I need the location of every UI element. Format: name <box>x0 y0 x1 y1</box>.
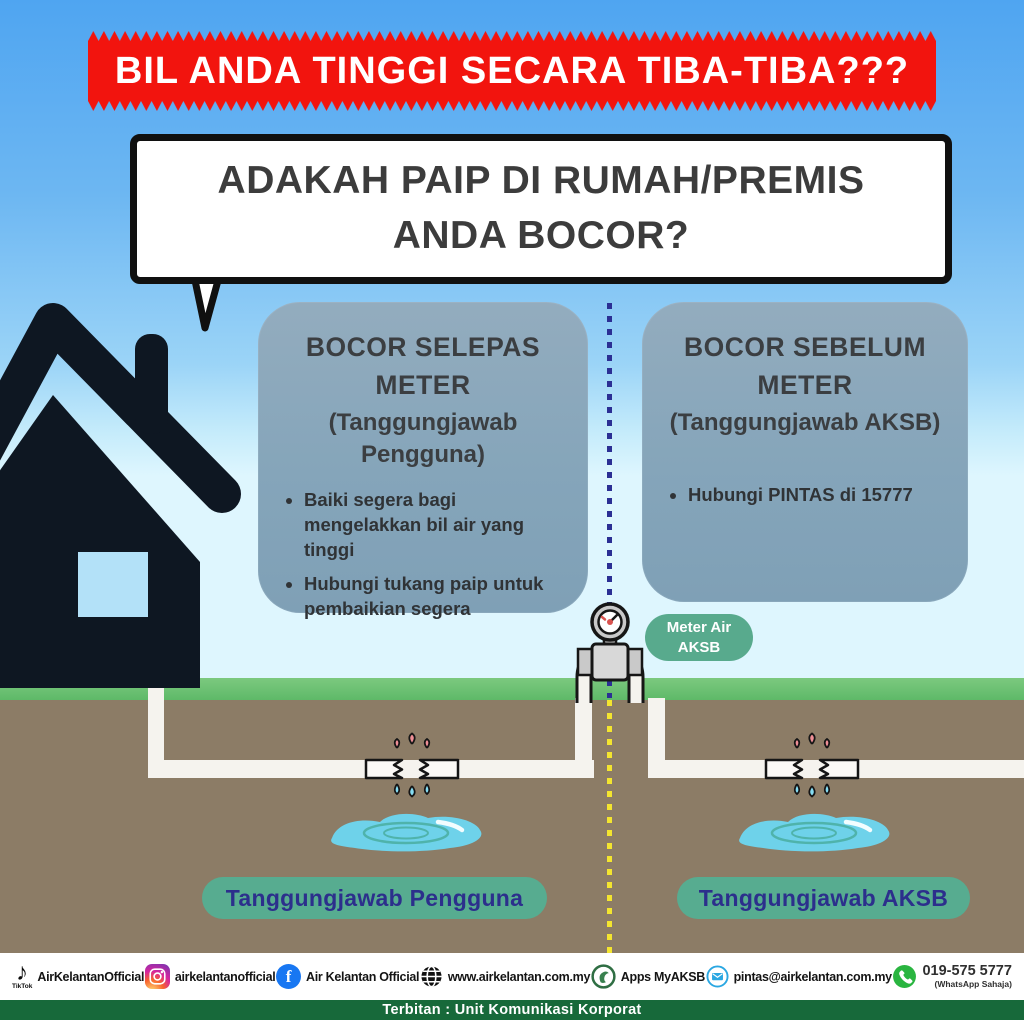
myaksb-app-icon <box>591 964 616 989</box>
card-bullet-list: Baiki segera bagi mengelakkan bil air ya… <box>280 488 566 622</box>
tiktok-handle: AirKelantanOfficial <box>37 970 144 984</box>
footer-contact-row: ♪ TikTok AirKelantanOfficial airkelantan… <box>0 953 1024 1000</box>
facebook-name: Air Kelantan Official <box>306 970 419 984</box>
card-bullet-list: Hubungi PINTAS di 15777 <box>664 483 946 508</box>
email-icon <box>706 965 729 988</box>
banner-zigzag-bottom <box>88 101 936 111</box>
bullet-item: Baiki segera bagi mengelakkan bil air ya… <box>304 488 566 563</box>
instagram-contact: airkelantanofficial <box>145 964 276 989</box>
website-contact: www.airkelantan.com.my <box>420 965 590 988</box>
bullet-item: Hubungi PINTAS di 15777 <box>688 483 946 508</box>
banner-text: BIL ANDA TINGGI SECARA TIBA-TIBA??? <box>115 50 909 93</box>
whatsapp-number: 019-575 5777 <box>922 964 1012 979</box>
app-contact: Apps MyAKSB <box>591 964 705 989</box>
tiktok-icon: ♪ <box>16 962 28 984</box>
meter-air-badge: Meter Air AKSB <box>645 614 753 661</box>
boundary-dashed-line-yellow <box>607 700 612 953</box>
publisher-bar: Terbitan : Unit Komunikasi Korporat <box>0 1000 1024 1020</box>
zone-label-aksb: Tanggungjawab AKSB <box>677 877 970 919</box>
instagram-icon <box>145 964 170 989</box>
email-contact: pintas@airkelantan.com.my <box>706 965 892 988</box>
water-puddle-left <box>320 806 492 854</box>
water-puddle-right <box>728 806 900 854</box>
instagram-handle: airkelantanofficial <box>175 970 276 984</box>
meter-downpipe-right <box>648 698 665 778</box>
facebook-contact: f Air Kelantan Official <box>276 964 419 989</box>
bubble-line-1: ADAKAH PAIP DI RUMAH/PREMIS <box>218 154 865 209</box>
app-label: Apps MyAKSB <box>621 970 705 984</box>
globe-icon <box>420 965 443 988</box>
bubble-line-2: ANDA BOCOR? <box>393 209 690 264</box>
tiktok-icon-label: TikTok <box>12 984 32 991</box>
top-banner: BIL ANDA TINGGI SECARA TIBA-TIBA??? <box>88 31 936 111</box>
house-icon <box>0 298 250 698</box>
email-address: pintas@airkelantan.com.my <box>734 970 892 984</box>
pipe-leak-icon-right <box>764 722 860 798</box>
whatsapp-note: (WhatsApp Sahaja) <box>922 980 1012 989</box>
meter-badge-line1: Meter Air <box>645 618 753 638</box>
card-title: BOCOR SEBELUM METER <box>664 328 946 405</box>
card-subtitle: (Tanggungjawab Pengguna) <box>280 407 566 472</box>
whatsapp-icon <box>892 964 917 989</box>
whatsapp-contact: 019-575 5777 (WhatsApp Sahaja) <box>892 964 1012 989</box>
facebook-icon: f <box>276 964 301 989</box>
pipe-leak-icon-left <box>364 722 460 798</box>
infographic-poster: BIL ANDA TINGGI SECARA TIBA-TIBA??? ADAK… <box>0 0 1024 1024</box>
card-title: BOCOR SELEPAS METER <box>280 328 566 405</box>
website-url: www.airkelantan.com.my <box>448 970 590 984</box>
card-leak-after-meter: BOCOR SELEPAS METER (Tanggungjawab Pengg… <box>258 302 588 613</box>
bullet-item: Hubungi tukang paip untuk pembaikian seg… <box>304 572 566 622</box>
zone-label-pengguna: Tanggungjawab Pengguna <box>202 877 547 919</box>
tiktok-contact: ♪ TikTok AirKelantanOfficial <box>12 962 144 990</box>
speech-bubble: ADAKAH PAIP DI RUMAH/PREMIS ANDA BOCOR? <box>130 134 952 284</box>
banner-zigzag-top <box>88 31 936 41</box>
card-leak-before-meter: BOCOR SEBELUM METER (Tanggungjawab AKSB)… <box>642 302 968 602</box>
card-subtitle: (Tanggungjawab AKSB) <box>664 407 946 439</box>
meter-downpipe-left <box>575 698 592 778</box>
meter-badge-line2: AKSB <box>645 638 753 658</box>
